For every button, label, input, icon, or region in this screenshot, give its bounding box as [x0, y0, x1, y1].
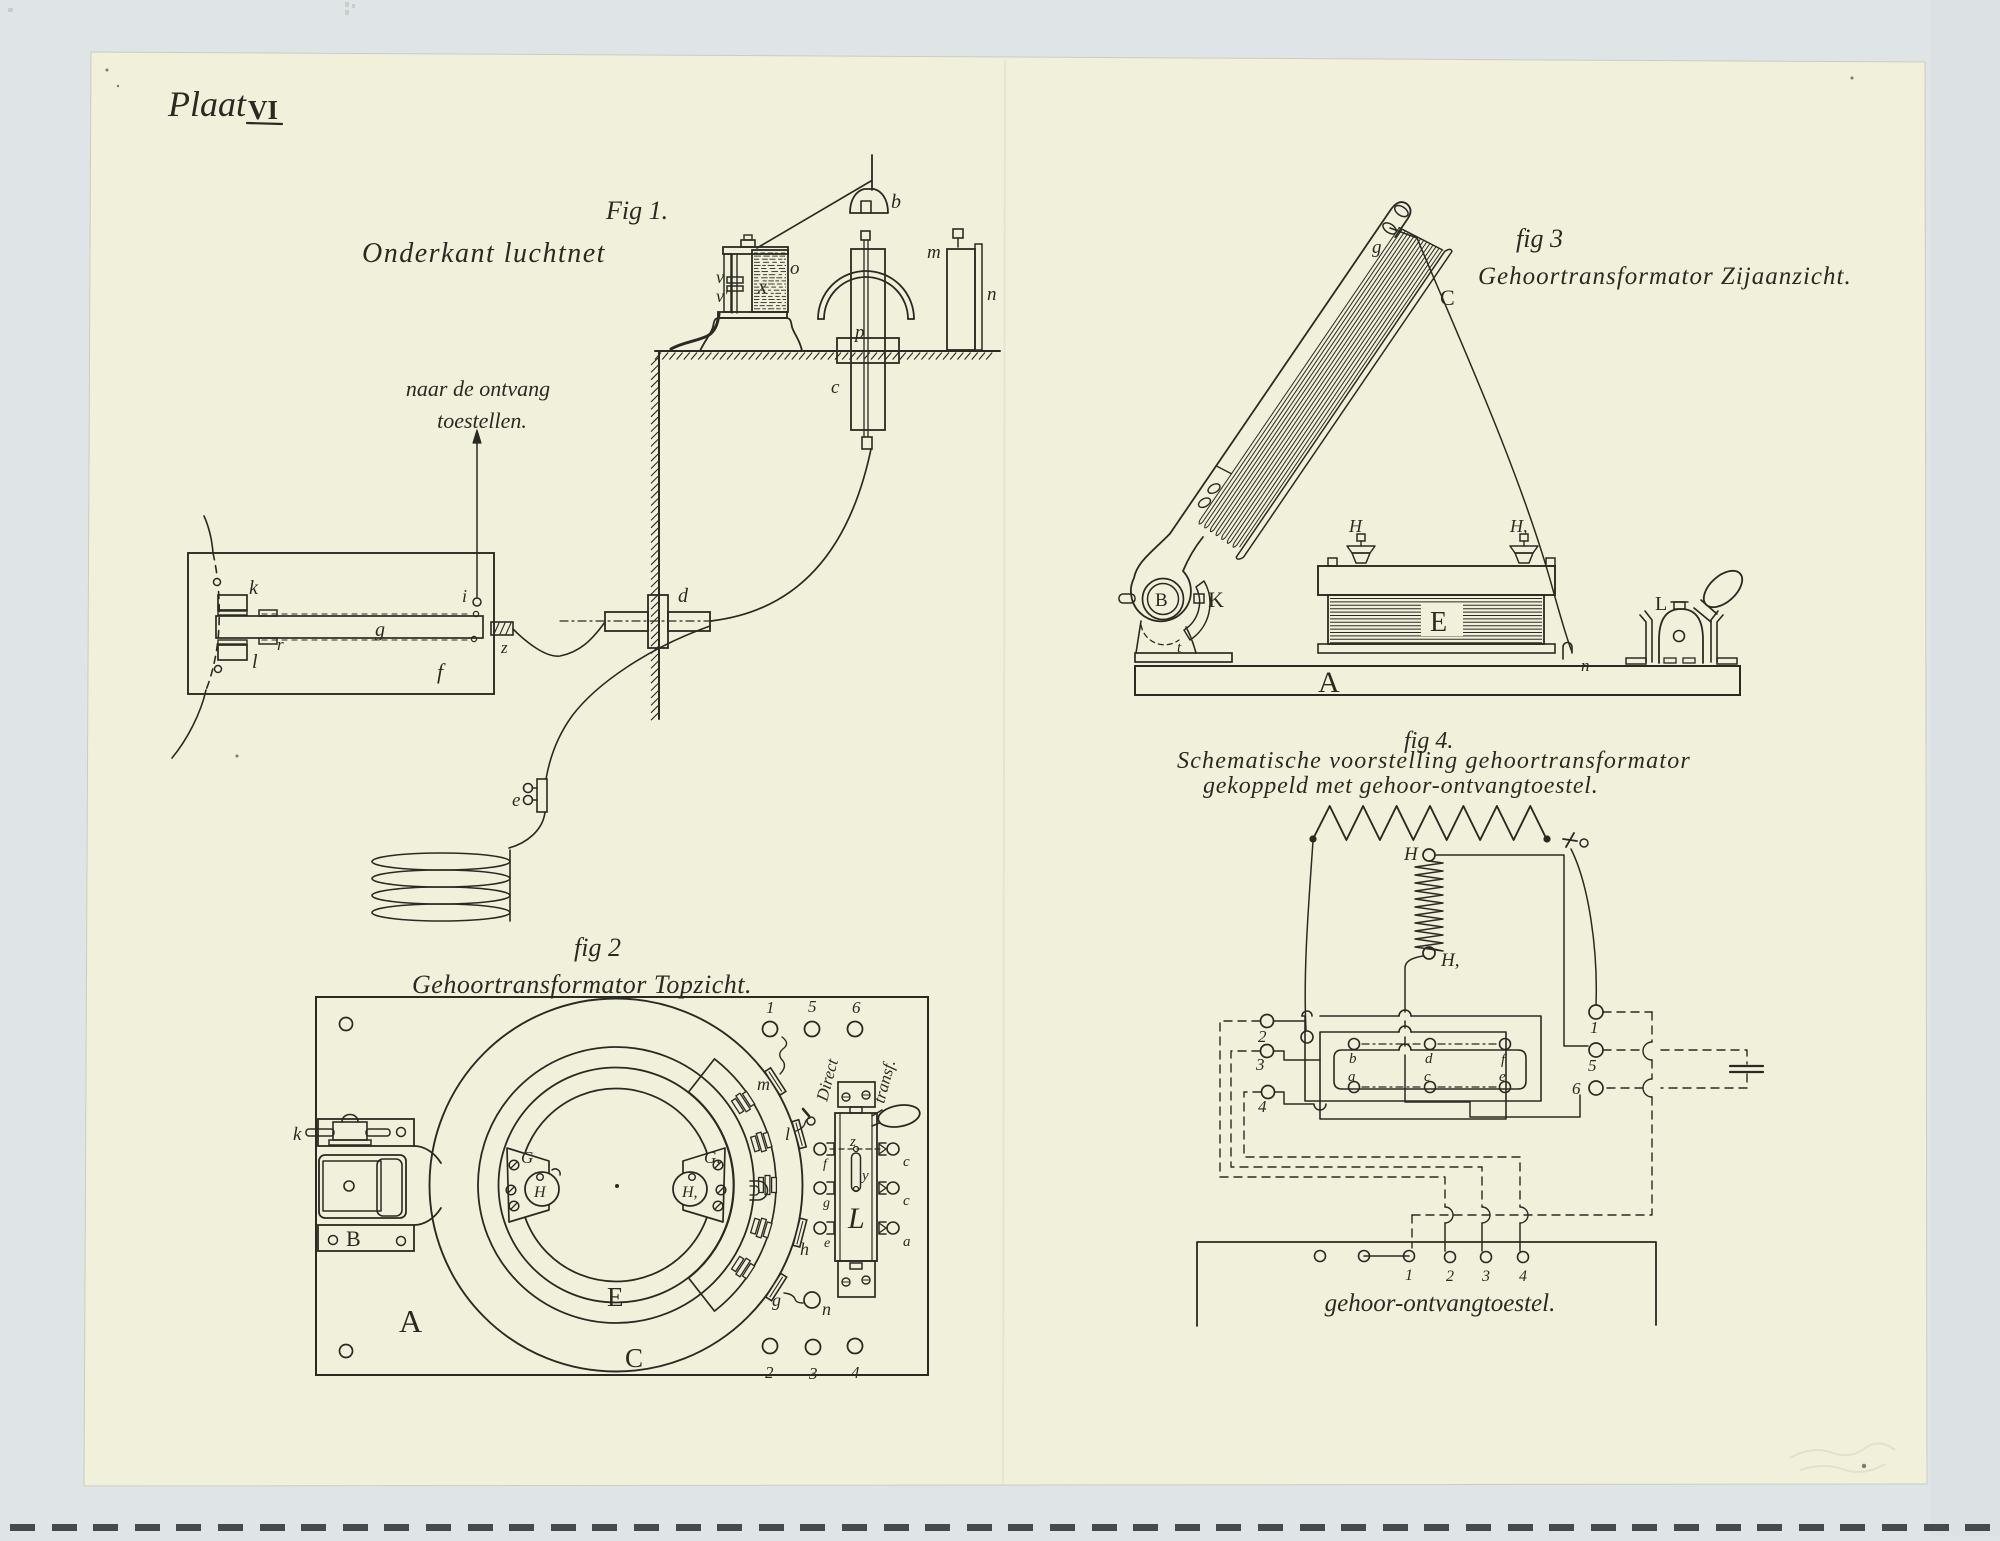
svg-text:naar de ontvang: naar de ontvang [406, 376, 550, 401]
svg-text:toestellen.: toestellen. [437, 408, 527, 433]
svg-text:m: m [757, 1074, 770, 1094]
svg-text:C: C [625, 1343, 643, 1373]
svg-text:e: e [1499, 1069, 1506, 1085]
svg-text:Gehoortransformator Zijaanzi: Gehoortransformator Zijaanzicht. [1478, 263, 1852, 290]
svg-text:2: 2 [1258, 1027, 1267, 1046]
svg-text:e: e [824, 1236, 830, 1251]
svg-text:Onderkant luchtnet: Onderkant luchtnet [362, 238, 606, 269]
svg-text:B: B [1155, 590, 1168, 611]
svg-text:4: 4 [1519, 1268, 1527, 1285]
svg-text:g: g [823, 1196, 830, 1211]
svg-text:2: 2 [1446, 1268, 1454, 1285]
svg-text:E: E [607, 1282, 624, 1312]
svg-text:3: 3 [808, 1364, 818, 1383]
svg-text:c: c [831, 377, 840, 398]
svg-text:fig 2: fig 2 [574, 933, 621, 962]
svg-text:A: A [1318, 666, 1340, 699]
svg-text:4: 4 [1258, 1097, 1267, 1116]
svg-text:n: n [1581, 656, 1590, 675]
svg-text:Gehoortransformator Topzicht.: Gehoortransformator Topzicht. [412, 970, 752, 999]
svg-text:5: 5 [1588, 1056, 1597, 1075]
svg-text:B: B [346, 1226, 361, 1251]
svg-text:n: n [822, 1299, 831, 1319]
svg-text:c: c [1424, 1069, 1431, 1085]
svg-text:o: o [790, 258, 800, 279]
svg-text:5: 5 [808, 997, 817, 1016]
svg-text:3: 3 [1481, 1268, 1490, 1285]
svg-text:c: c [903, 1154, 910, 1170]
svg-text:2: 2 [765, 1363, 774, 1382]
svg-text:H,: H, [681, 1184, 698, 1201]
svg-text:H: H [1348, 516, 1363, 536]
svg-text:v: v [716, 267, 724, 287]
svg-text:fig 3: fig 3 [1516, 224, 1563, 253]
svg-text:h: h [800, 1239, 809, 1259]
svg-text:n: n [987, 284, 997, 305]
svg-text:r: r [277, 635, 284, 654]
svg-text:k: k [293, 1124, 302, 1145]
svg-text:z: z [500, 638, 508, 657]
svg-text:VI: VI [248, 95, 278, 125]
svg-text:e: e [512, 790, 520, 811]
svg-text:E: E [1430, 607, 1447, 638]
svg-text:Fig 1.: Fig 1. [605, 196, 668, 225]
svg-text:i: i [462, 586, 467, 606]
svg-text:k: k [249, 577, 259, 599]
svg-text:a: a [903, 1234, 911, 1250]
svg-text:G,: G, [704, 1148, 721, 1167]
svg-text:v': v' [716, 286, 729, 306]
svg-text:C: C [1440, 285, 1455, 310]
svg-text:c: c [903, 1193, 910, 1209]
svg-text:H,: H, [1509, 516, 1528, 536]
svg-text:gehoor-ontvangtoestel.: gehoor-ontvangtoestel. [1325, 1290, 1556, 1317]
svg-text:1: 1 [1405, 1267, 1413, 1284]
svg-text:H: H [533, 1184, 547, 1201]
svg-text:A: A [399, 1303, 422, 1339]
svg-text:y: y [860, 1168, 869, 1184]
svg-text:d: d [1425, 1051, 1433, 1067]
svg-text:d: d [678, 585, 689, 607]
svg-text:Schematische voorstelling geho: Schematische voorstelling gehoortransfor… [1177, 748, 1691, 774]
svg-text:K: K [1208, 587, 1224, 612]
svg-text:l: l [252, 651, 258, 673]
svg-text:1: 1 [766, 998, 775, 1017]
svg-text:g: g [772, 1290, 781, 1310]
svg-text:gekoppeld met gehoor-ontvangto: gekoppeld met gehoor-ontvangtoestel. [1203, 773, 1599, 799]
svg-text:3: 3 [1255, 1055, 1265, 1074]
svg-text:L: L [847, 1202, 865, 1235]
svg-text:g: g [1372, 237, 1382, 258]
svg-text:G: G [521, 1148, 533, 1167]
svg-text:a: a [1348, 1069, 1356, 1085]
svg-text:p: p [853, 322, 865, 343]
svg-text:Plaat: Plaat [167, 84, 247, 124]
svg-text:m: m [927, 242, 941, 263]
svg-text:H,: H, [1440, 950, 1459, 971]
svg-text:l: l [785, 1124, 790, 1144]
svg-text:L: L [1655, 593, 1667, 615]
svg-text:z: z [849, 1134, 856, 1150]
svg-text:6: 6 [852, 998, 861, 1017]
svg-text:4: 4 [851, 1363, 860, 1382]
svg-text:x: x [757, 276, 767, 298]
svg-text:1: 1 [1590, 1018, 1599, 1037]
svg-text:g: g [375, 619, 385, 641]
svg-text:b: b [891, 191, 901, 213]
svg-text:b: b [1349, 1051, 1357, 1067]
svg-text:H: H [1403, 844, 1419, 865]
